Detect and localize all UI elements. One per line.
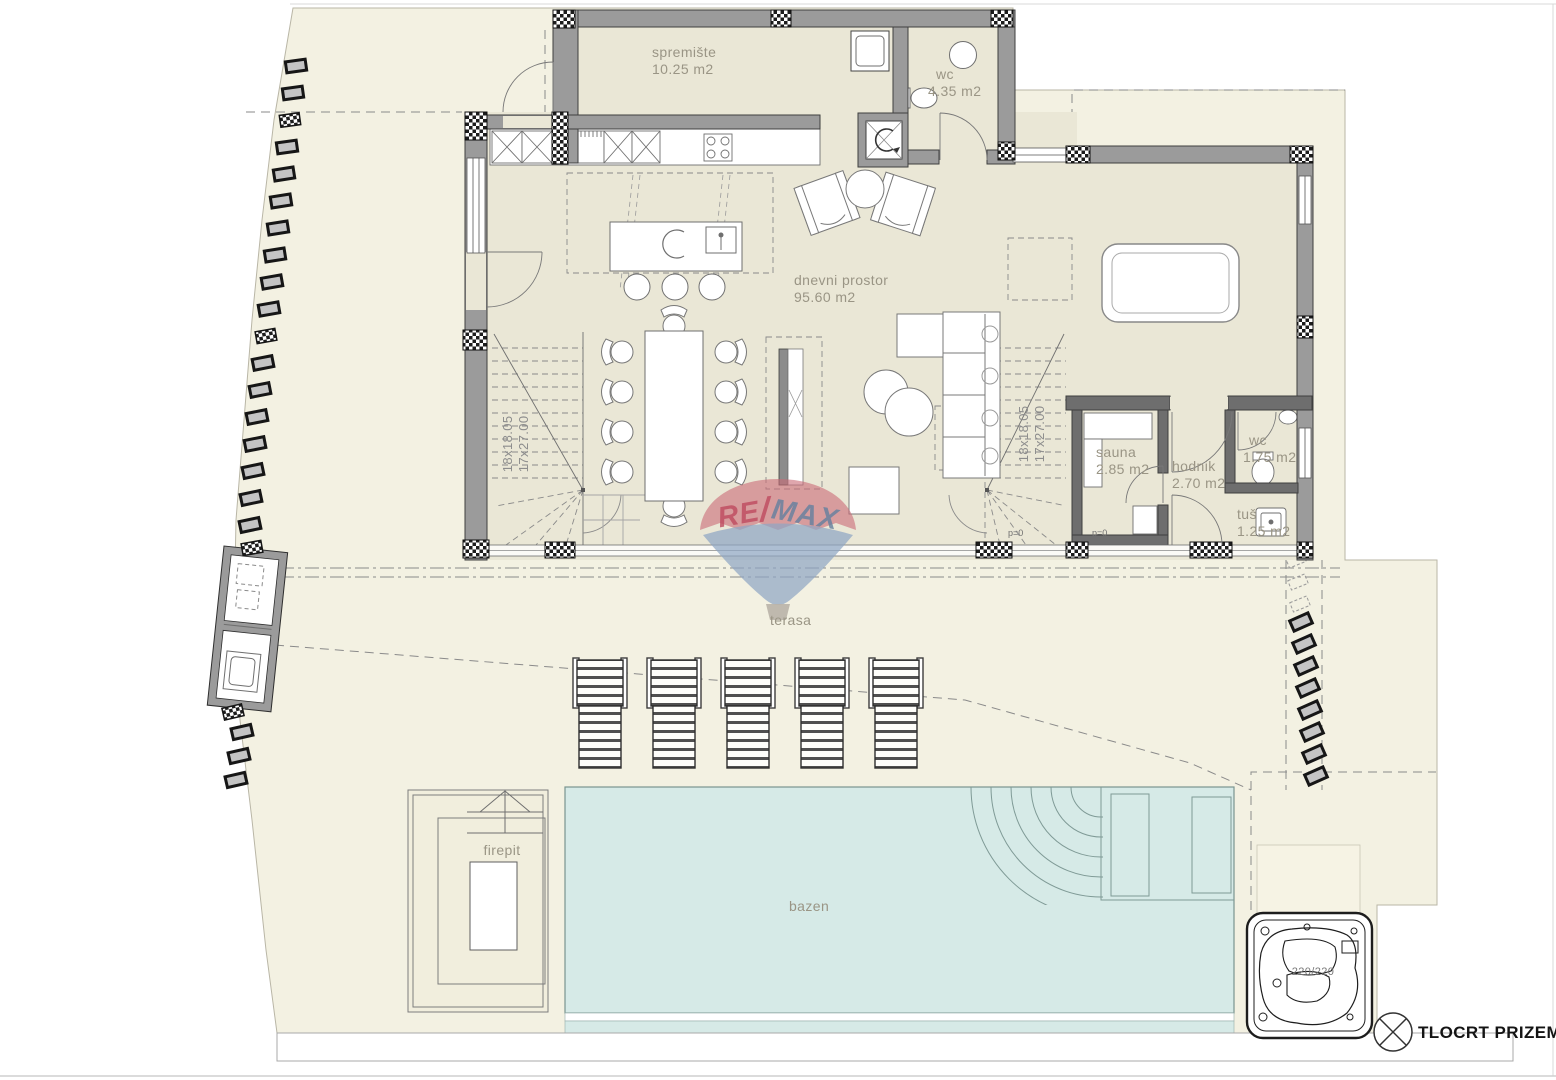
north-symbol-icon [1374,1013,1412,1051]
floor-plan-drawing [0,0,1556,1080]
room-area: 95.60 m2 [794,289,888,306]
room-label-sauna: sauna 2.85 m2 [1096,444,1149,478]
bar-stool [624,274,650,300]
stairs-label-left: 18x18.05 17x27.00 [500,384,532,504]
room-label-wc-small: wc 1.75 m2 [1243,432,1296,466]
dining-table [645,331,703,501]
bar-stool [662,274,688,300]
room-area: 2.70 m2 [1172,475,1225,492]
room-label-tus: tuš 1.25 m2 [1237,506,1290,540]
floor-plan-page: spremište 10.25 m2 wc 4.35 m2 dnevni pro… [0,0,1556,1080]
remax-logo-max: MAX [769,493,841,537]
room-area: 1.75 m2 [1243,449,1296,466]
room-label-spremiste: spremište 10.25 m2 [652,44,716,78]
plan-title: TLOCRT PRIZEMLJA [1418,1023,1556,1043]
room-name: hodnik [1172,458,1225,475]
glazing-south [487,545,1313,556]
firepit-area [408,790,548,1012]
window [467,158,485,253]
room-name: wc [936,66,981,83]
room-label-wc-top: wc 4.35 m2 [928,66,981,100]
bar-stool [699,274,725,300]
corner-sink-icon [1279,410,1297,424]
side-table [846,170,884,208]
pool-table [1102,244,1239,322]
area-label-terasa: terasa [770,612,811,629]
stairs-label-right: 18x18.05 17x27.00 [1016,374,1048,494]
room-area: 4.35 m2 [928,83,981,100]
area-label-bazen: bazen [789,898,829,915]
room-area: 2.85 m2 [1096,461,1149,478]
remax-logo: RE / MAX [698,492,858,531]
area-label-firepit: firepit [462,842,542,859]
shaft-symbol [866,121,902,159]
room-label-dnevni: dnevni prostor 95.60 m2 [794,272,888,306]
room-name: spremište [652,44,716,61]
room-name: dnevni prostor [794,272,888,289]
level-marker: p=0 [1008,528,1023,539]
room-label-hodnik: hodnik 2.70 m2 [1172,458,1225,492]
room-name: tuš [1237,506,1290,523]
coffee-table [885,388,933,436]
room-area: 10.25 m2 [652,61,716,78]
room-name: wc [1249,432,1296,449]
sofa-chaise [897,314,943,357]
room-name: sauna [1096,444,1149,461]
sink-icon [950,42,977,69]
level-marker: p=0 [1092,528,1107,539]
room-area: 1.25 m2 [1237,523,1290,540]
remax-logo-re: RE [715,496,762,536]
hot-tub-size-label: 220/220 [1278,966,1348,979]
